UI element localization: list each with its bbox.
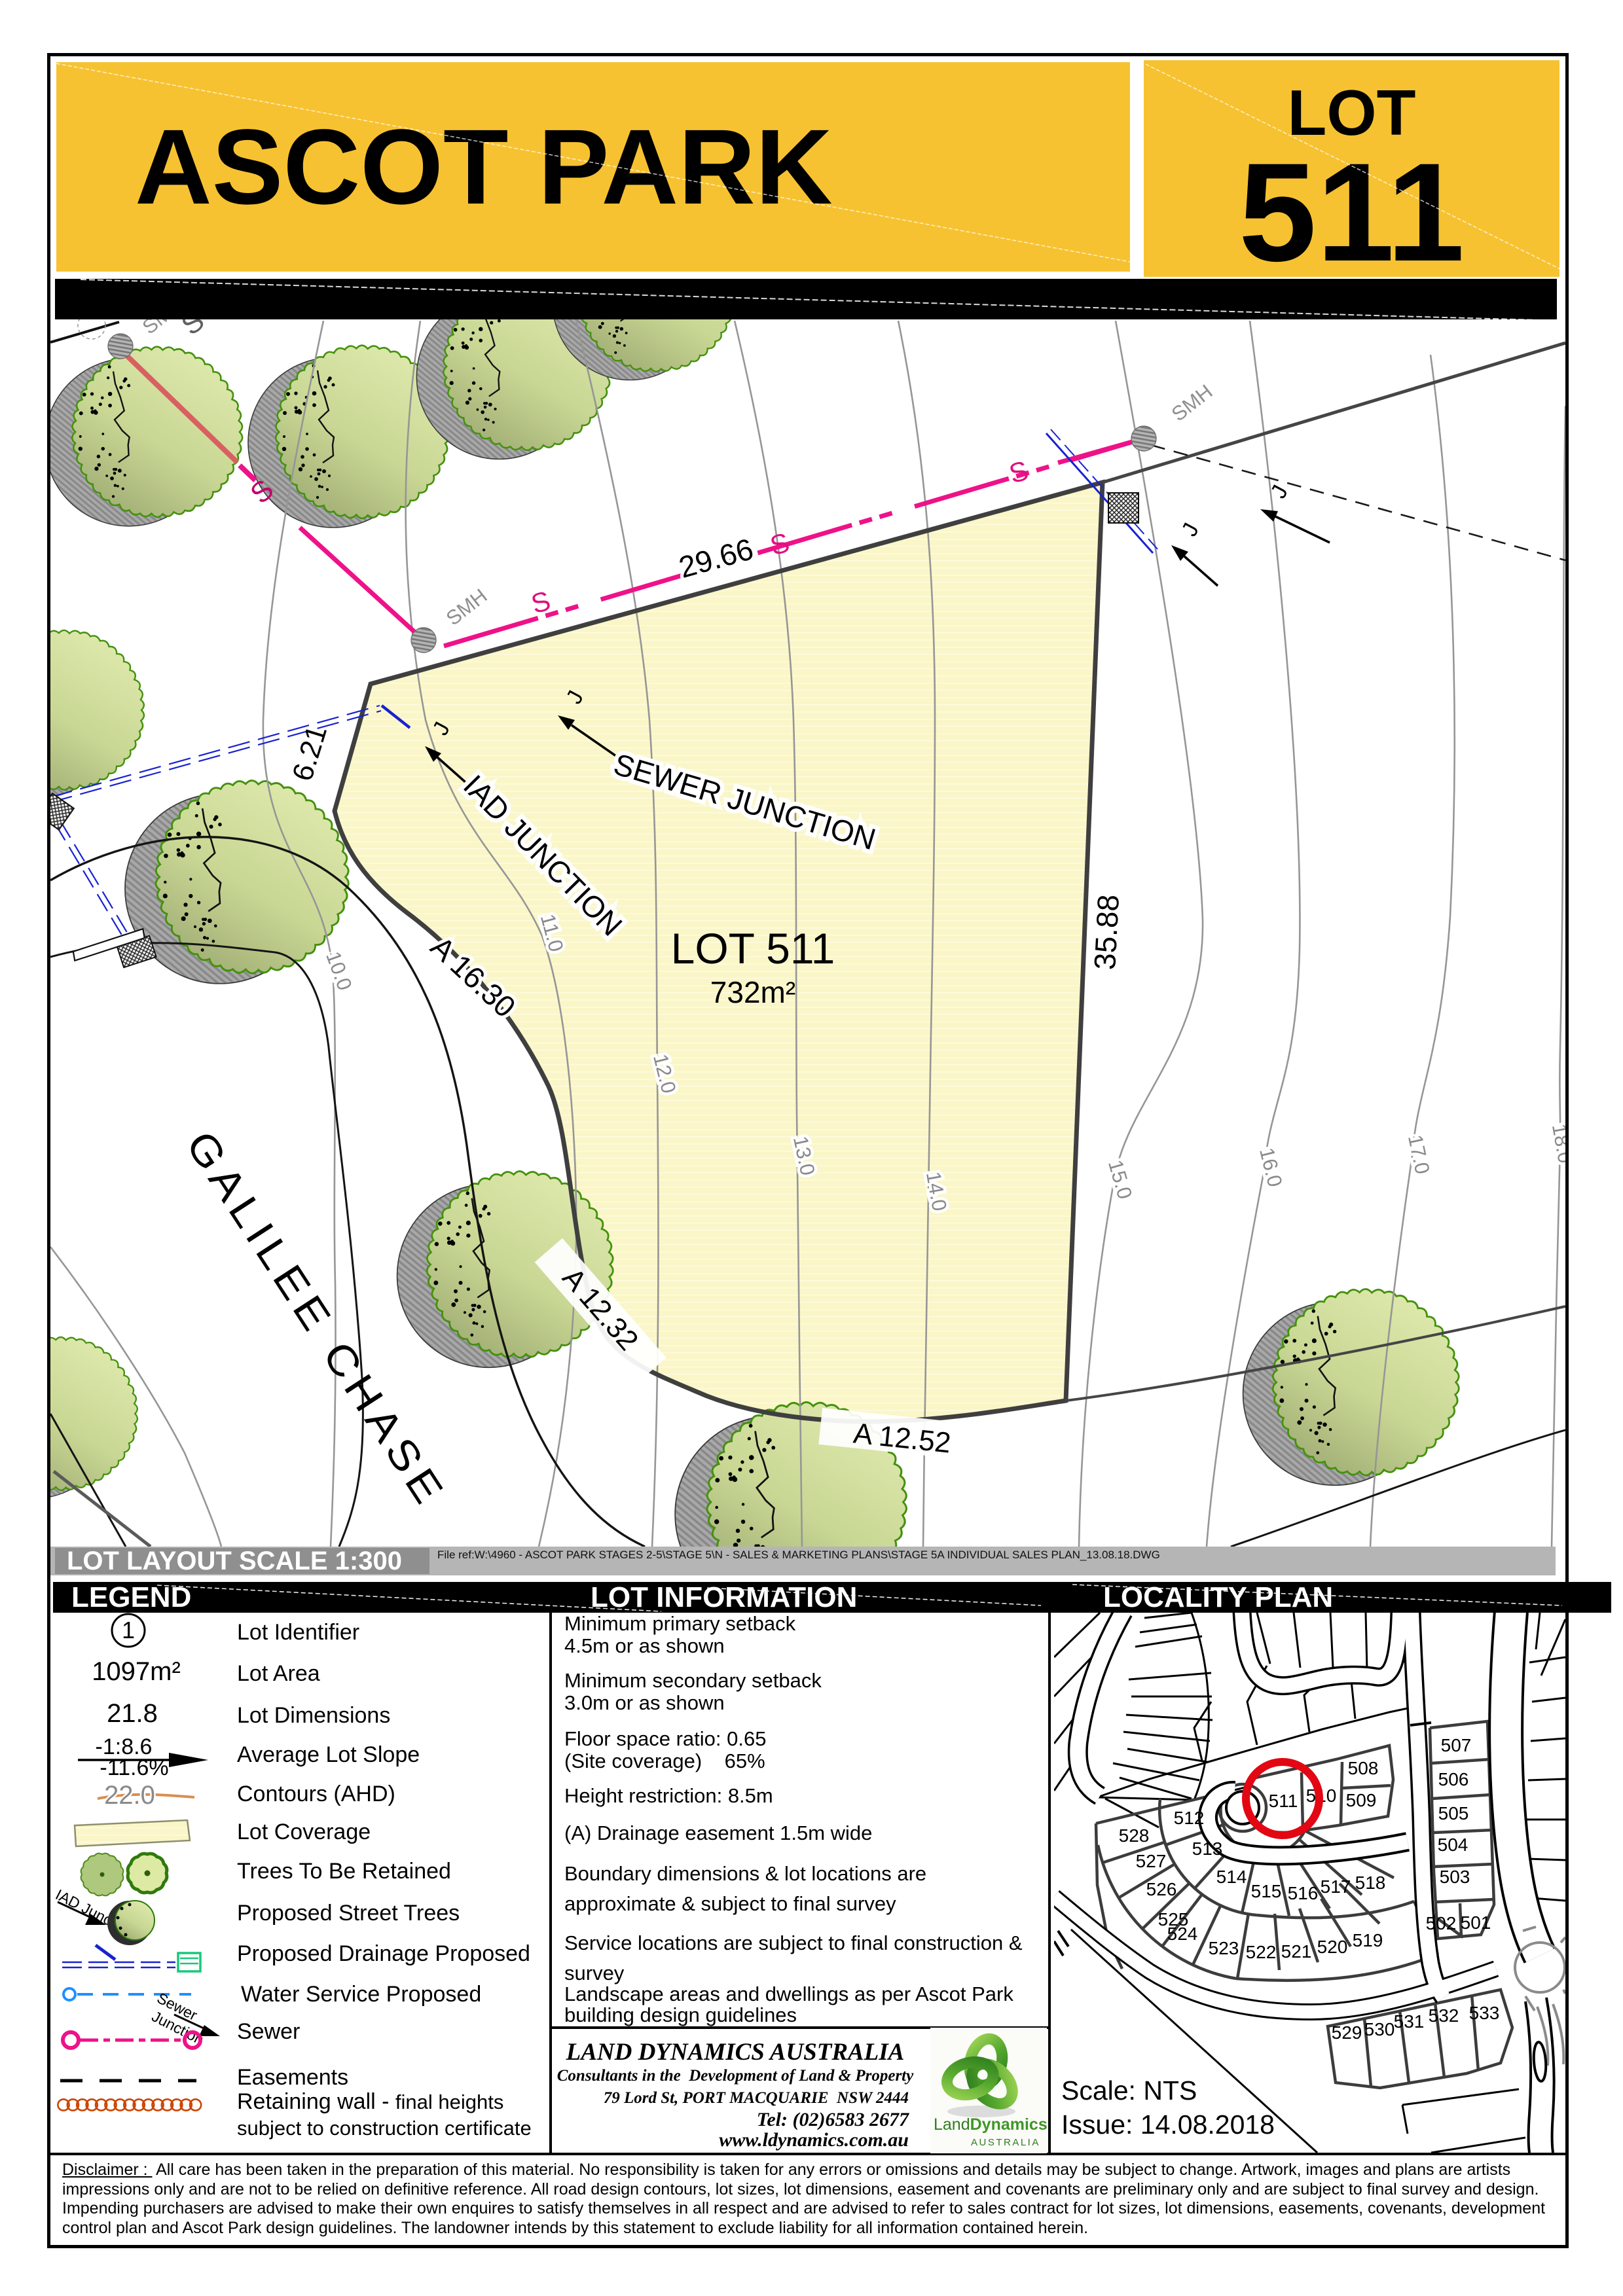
- svg-text:505: 505: [1438, 1803, 1469, 1823]
- svg-text:Proposed Street Trees: Proposed Street Trees: [237, 1901, 460, 1926]
- svg-text:527: 527: [1136, 1851, 1167, 1871]
- svg-text:530: 530: [1364, 2019, 1395, 2039]
- svg-text:Issue: 14.08.2018: Issue: 14.08.2018: [1061, 2109, 1275, 2140]
- svg-text:515: 515: [1251, 1881, 1282, 1901]
- svg-text:Scale: NTS: Scale: NTS: [1061, 2075, 1197, 2106]
- svg-text:513: 513: [1192, 1839, 1223, 1859]
- svg-text:529: 529: [1332, 2022, 1362, 2043]
- svg-text:524: 524: [1167, 1924, 1198, 1944]
- svg-text:732m²: 732m²: [710, 975, 795, 1009]
- svg-text:Lot Dimensions: Lot Dimensions: [237, 1703, 390, 1728]
- svg-text:522: 522: [1246, 1942, 1277, 1962]
- svg-text:Retaining wall - final heights: Retaining wall - final heights: [237, 2089, 503, 2114]
- svg-text:35.88: 35.88: [1087, 893, 1125, 971]
- svg-text:Trees To Be Retained: Trees To Be Retained: [237, 1859, 451, 1884]
- svg-text:532: 532: [1429, 2005, 1459, 2026]
- svg-text:Water Service Proposed: Water Service Proposed: [241, 1982, 481, 2007]
- svg-text:Sewer: Sewer: [237, 2019, 300, 2044]
- svg-text:528: 528: [1119, 1825, 1150, 1846]
- svg-text:508: 508: [1348, 1758, 1379, 1778]
- svg-text:Lot Coverage: Lot Coverage: [237, 1820, 371, 1844]
- svg-text:514: 514: [1216, 1867, 1247, 1887]
- svg-text:504: 504: [1438, 1835, 1468, 1855]
- svg-text:503: 503: [1440, 1867, 1470, 1887]
- svg-text:501: 501: [1461, 1912, 1491, 1933]
- svg-text:subject to construction certif: subject to construction certificate: [237, 2117, 532, 2140]
- svg-text:512: 512: [1174, 1808, 1205, 1828]
- svg-text:509: 509: [1346, 1790, 1377, 1810]
- svg-text:Average Lot Slope: Average Lot Slope: [237, 1742, 420, 1767]
- svg-text:523: 523: [1209, 1938, 1239, 1958]
- svg-text:AUSTRALIA: AUSTRALIA: [971, 2137, 1040, 2148]
- svg-text:533: 533: [1469, 2003, 1500, 2023]
- svg-text:507: 507: [1441, 1735, 1472, 1755]
- svg-text:21.8: 21.8: [107, 1699, 158, 1728]
- svg-text:Proposed Drainage Proposed: Proposed Drainage Proposed: [237, 1941, 530, 1966]
- svg-text:531: 531: [1394, 2011, 1425, 2032]
- svg-text:511: 511: [1269, 1791, 1298, 1811]
- svg-text:1097m²: 1097m²: [92, 1657, 181, 1686]
- svg-text:506: 506: [1438, 1769, 1469, 1789]
- svg-text:Contours (AHD): Contours (AHD): [237, 1782, 395, 1806]
- svg-text:516: 516: [1288, 1883, 1319, 1903]
- svg-text:LandDynamics: LandDynamics: [934, 2115, 1047, 2134]
- svg-text:Lot Area: Lot Area: [237, 1661, 320, 1686]
- svg-text:517: 517: [1321, 1876, 1351, 1897]
- svg-text:Easements: Easements: [237, 2065, 348, 2090]
- svg-text:519: 519: [1353, 1930, 1383, 1950]
- svg-text:1: 1: [122, 1617, 135, 1643]
- svg-text:526: 526: [1146, 1879, 1177, 1899]
- svg-text:22.0: 22.0: [104, 1781, 155, 1810]
- svg-text:LOT 511: LOT 511: [671, 924, 835, 973]
- svg-text:-11.6%: -11.6%: [100, 1755, 168, 1780]
- svg-text:502: 502: [1426, 1913, 1457, 1933]
- svg-text:521: 521: [1281, 1941, 1312, 1962]
- svg-text:518: 518: [1355, 1873, 1386, 1893]
- svg-text:Lot Identifier: Lot Identifier: [237, 1620, 359, 1645]
- svg-text:520: 520: [1317, 1937, 1348, 1957]
